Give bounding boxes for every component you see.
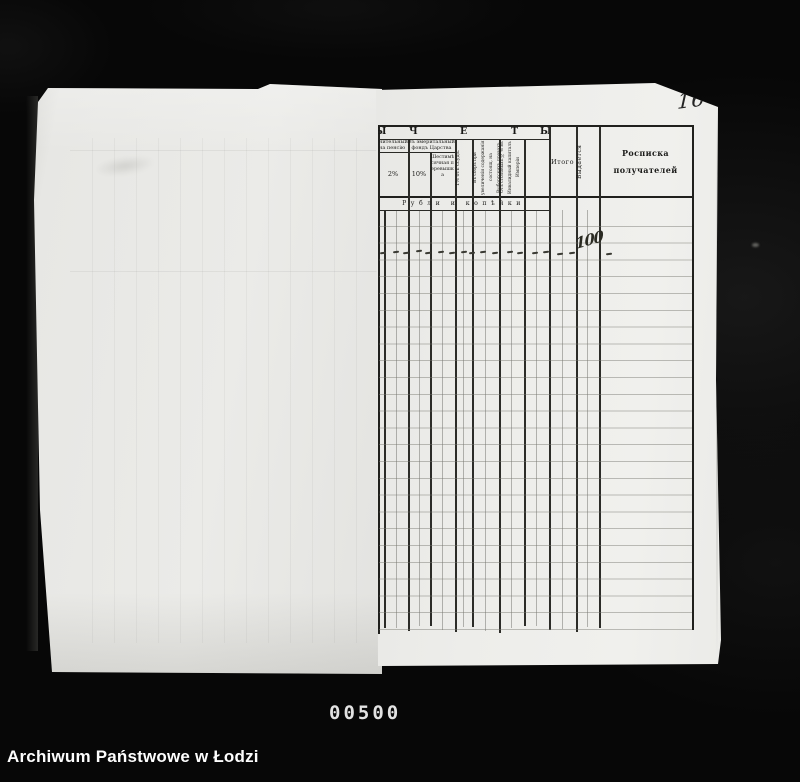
band-letter: Т xyxy=(511,126,518,137)
band-letter: Ы xyxy=(378,126,386,137)
page-left-blank xyxy=(30,80,382,676)
col-six-month-surplus: Шестимѣсячная перевышка xyxy=(430,152,455,196)
col-receipt-header: Росписка получателей xyxy=(599,127,692,196)
col-loans-percent: 1% отъ ссудъ. xyxy=(455,139,472,196)
bleedthrough-text-smudge xyxy=(84,149,167,184)
row-ruling xyxy=(379,210,692,632)
col-issued: Выдается xyxy=(576,127,599,196)
col-invalid-capital-levy: Отъ столовыхъ ½% въ Инвалидный капиталъ … xyxy=(499,139,524,196)
col-total: Итого xyxy=(549,127,576,196)
page-right-ledger: 16 xyxy=(374,80,722,668)
col-emerital-group-label: Въ эмеритальный фондъ Царства xyxy=(408,139,455,152)
currency-band: Рубли и копѣйки xyxy=(378,196,549,210)
band-letter: Е xyxy=(460,126,467,137)
col-salary-increase-levy: Въ сборъ при увеличеніи содержанія состо… xyxy=(472,139,499,196)
col-emerital-rate: 10% xyxy=(408,152,430,196)
archive-watermark: Archiwum Państwowe w Łodzi xyxy=(7,747,259,767)
frame-counter: 00500 xyxy=(329,702,401,724)
handwritten-page-number: 16 xyxy=(677,86,706,114)
scanned-archive-photo: 16 xyxy=(0,0,800,782)
band-letter: Ы xyxy=(540,126,549,137)
receipt-line2: получателей xyxy=(613,165,677,175)
grid-line xyxy=(692,125,694,630)
bleedthrough-header-rules xyxy=(70,150,382,272)
dust-speck xyxy=(752,243,759,247)
band-letter: Ч xyxy=(409,126,418,137)
header-band-letters: Ы Ч Е Т Ы xyxy=(378,125,549,139)
bleedthrough-ghost-columns xyxy=(92,138,382,643)
receipt-line1: Росписка xyxy=(622,148,669,158)
col-pension-rate: 2% xyxy=(378,151,408,196)
